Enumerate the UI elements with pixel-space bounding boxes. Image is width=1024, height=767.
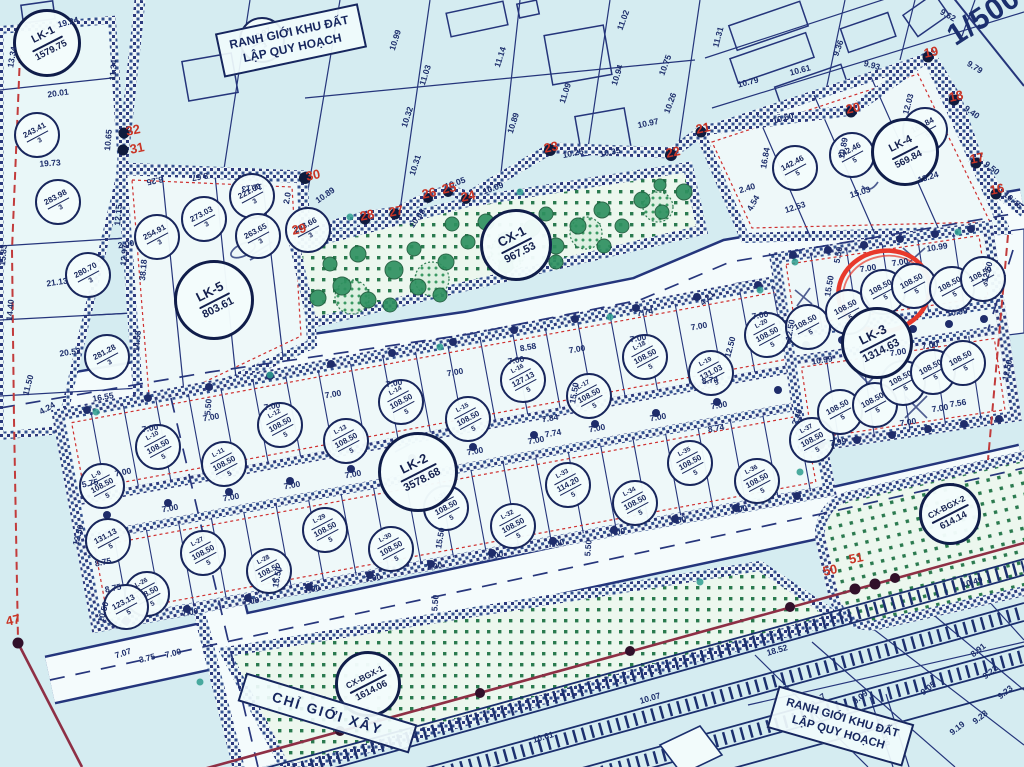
- plot-circle: L-30108.505: [368, 526, 414, 572]
- plot-circle-content: L-34108.505: [617, 484, 652, 522]
- dimension-label: 14.40: [4, 299, 16, 321]
- plot-circle-content: L-29108.505: [307, 511, 342, 549]
- plot-circle: 108.505: [940, 340, 986, 386]
- plot-circle-content: L-12108.505: [262, 406, 297, 444]
- plot-circle: 243.413: [14, 112, 60, 158]
- plot-circle: 263.653: [235, 213, 281, 259]
- plot-circle-content: 254.913: [142, 223, 173, 251]
- dimension-label: 2.0: [281, 191, 293, 204]
- boundary-vertex-number: 24: [459, 187, 476, 205]
- zone-circle-content: CX-BGX-2614.14: [926, 494, 973, 535]
- dimension-label: 38.18: [137, 259, 149, 281]
- plot-circle: L-36108.505: [734, 458, 780, 504]
- plot-circle: 142.465: [772, 145, 818, 191]
- plot-circle: 280.703: [65, 252, 111, 298]
- plot-circle-content: L-32108.505: [495, 507, 530, 545]
- plot-circle: 273.033: [181, 196, 227, 242]
- plot-circle-content: 142.465: [780, 154, 811, 182]
- boundary-vertex-number: 27: [387, 202, 404, 220]
- dimension-label: 12.15: [112, 204, 124, 226]
- zone-circle-content: LK-23578.68: [393, 449, 443, 495]
- boundary-vertex-number: 51: [847, 549, 864, 567]
- boundary-vertex-number: 16: [988, 180, 1005, 198]
- boundary-vertex-number: 21: [694, 119, 711, 137]
- plot-circle-content: 263.653: [243, 222, 274, 250]
- plot-circle-content: 123.135: [111, 593, 142, 621]
- boundary-vertex-number: 47: [4, 611, 21, 629]
- plot-circle-content: 281.283: [92, 343, 123, 371]
- zone-circle-content: LK-4569.84: [886, 133, 924, 171]
- boundary-vertex-number: 19: [922, 43, 939, 61]
- boundary-vertex-number: 50: [821, 561, 838, 579]
- boundary-vertex-number: 20: [844, 99, 861, 117]
- plot-circle-content: 108.505: [793, 313, 824, 341]
- plot-circle: L-35108.505: [667, 440, 713, 486]
- boundary-vertex-number: 26: [420, 184, 437, 202]
- plot-circle-content: L-15108.505: [450, 400, 485, 438]
- dimension-label: 5.50: [582, 539, 593, 556]
- plot-circle: L-34108.505: [612, 480, 658, 526]
- plot-circle: L-28108.505: [246, 548, 292, 594]
- dimension-label: 10.65: [102, 129, 114, 151]
- plot-circle-content: 283.983: [43, 188, 74, 216]
- dimension-label: 11.34: [107, 59, 119, 81]
- boundary-vertex-number: 18: [947, 87, 964, 105]
- plot-circle-content: 280.703: [73, 261, 104, 289]
- plot-circle-content: L-20108.505: [749, 316, 784, 354]
- zone-circle-content: LK-11579.75: [25, 23, 68, 63]
- zone-circle-content: CX-BGX-11614.06: [344, 664, 391, 705]
- plot-circle-content: L-35108.505: [672, 444, 707, 482]
- dimension-label: 14.53: [131, 330, 143, 352]
- plot-circle-content: L-13108.505: [328, 422, 363, 460]
- zone-circle-content: LK-5803.61: [192, 278, 236, 321]
- dimension-label: 5.50: [429, 594, 440, 611]
- plot-circle: L-32108.505: [490, 503, 536, 549]
- plot-circle: L-11108.505: [201, 441, 247, 487]
- plot-circle: 283.983: [35, 179, 81, 225]
- zone-circle-lk-5: LK-5803.61: [174, 260, 254, 340]
- plot-circle: L-33114.205: [545, 462, 591, 508]
- dimension-label: 19.73: [39, 157, 61, 168]
- plot-circle-content: L-33114.205: [550, 466, 585, 503]
- plot-circle-content: 108.505: [899, 272, 930, 300]
- plot-circle-content: L-16127.135: [505, 361, 540, 399]
- plot-circle-content: 243.413: [22, 121, 53, 149]
- zone-circle-lk-2: LK-23578.68: [378, 432, 458, 512]
- boundary-vertex-number: 17: [968, 149, 985, 167]
- plot-circle-content: L-10108.505: [140, 428, 175, 466]
- plot-circle: 254.913: [134, 214, 180, 260]
- plot-circle-content: 131.135: [93, 527, 124, 555]
- plot-circle-content: L-27108.505: [185, 534, 220, 572]
- plot-circle: L-15108.505: [445, 396, 491, 442]
- plot-circle: 281.283: [84, 334, 130, 380]
- plot-circle-content: L-19131.035: [693, 354, 728, 392]
- boundary-vertex-number: 30: [304, 166, 321, 184]
- zone-circle-cx-1: CX-1967.53: [480, 209, 552, 281]
- plot-circle-content: L-36108.505: [739, 462, 774, 500]
- plot-circle: L-16127.135: [500, 357, 546, 403]
- zone-circle-content: LK-31314.63: [852, 320, 902, 366]
- boundary-vertex-number: 29: [290, 220, 307, 238]
- boundary-vertex-number: 25: [440, 179, 457, 197]
- zoning-plan-map: RANH GIỚI KHU ĐẤT LẬP QUY HOẠCH RANH GIỚ…: [0, 0, 1024, 767]
- plot-circle-content: 108.505: [825, 398, 856, 426]
- plot-circle: 221.663: [229, 173, 275, 219]
- zone-circle-cx-bgx-2: CX-BGX-2614.14: [919, 483, 981, 545]
- plot-circle-content: 108.505: [948, 349, 979, 377]
- boundary-vertex-number: 31: [128, 139, 145, 157]
- boundary-vertex-number: 22: [664, 143, 681, 161]
- zone-circle-lk-3: LK-31314.63: [841, 307, 913, 379]
- zone-circle-content: CX-1967.53: [494, 223, 538, 266]
- boundary-vertex-number: 23: [542, 138, 559, 156]
- boundary-vertex-number: 32: [124, 121, 141, 139]
- boundary-vertex-number: 28: [358, 206, 375, 224]
- plot-circle-content: 273.033: [189, 205, 220, 233]
- plot-circle-content: L-11108.505: [206, 445, 241, 483]
- plot-circle: L-29108.505: [302, 507, 348, 553]
- plot-circle: L-27108.505: [180, 530, 226, 576]
- plot-circle: L-13108.505: [323, 418, 369, 464]
- plot-circle-content: L-30108.505: [373, 530, 408, 568]
